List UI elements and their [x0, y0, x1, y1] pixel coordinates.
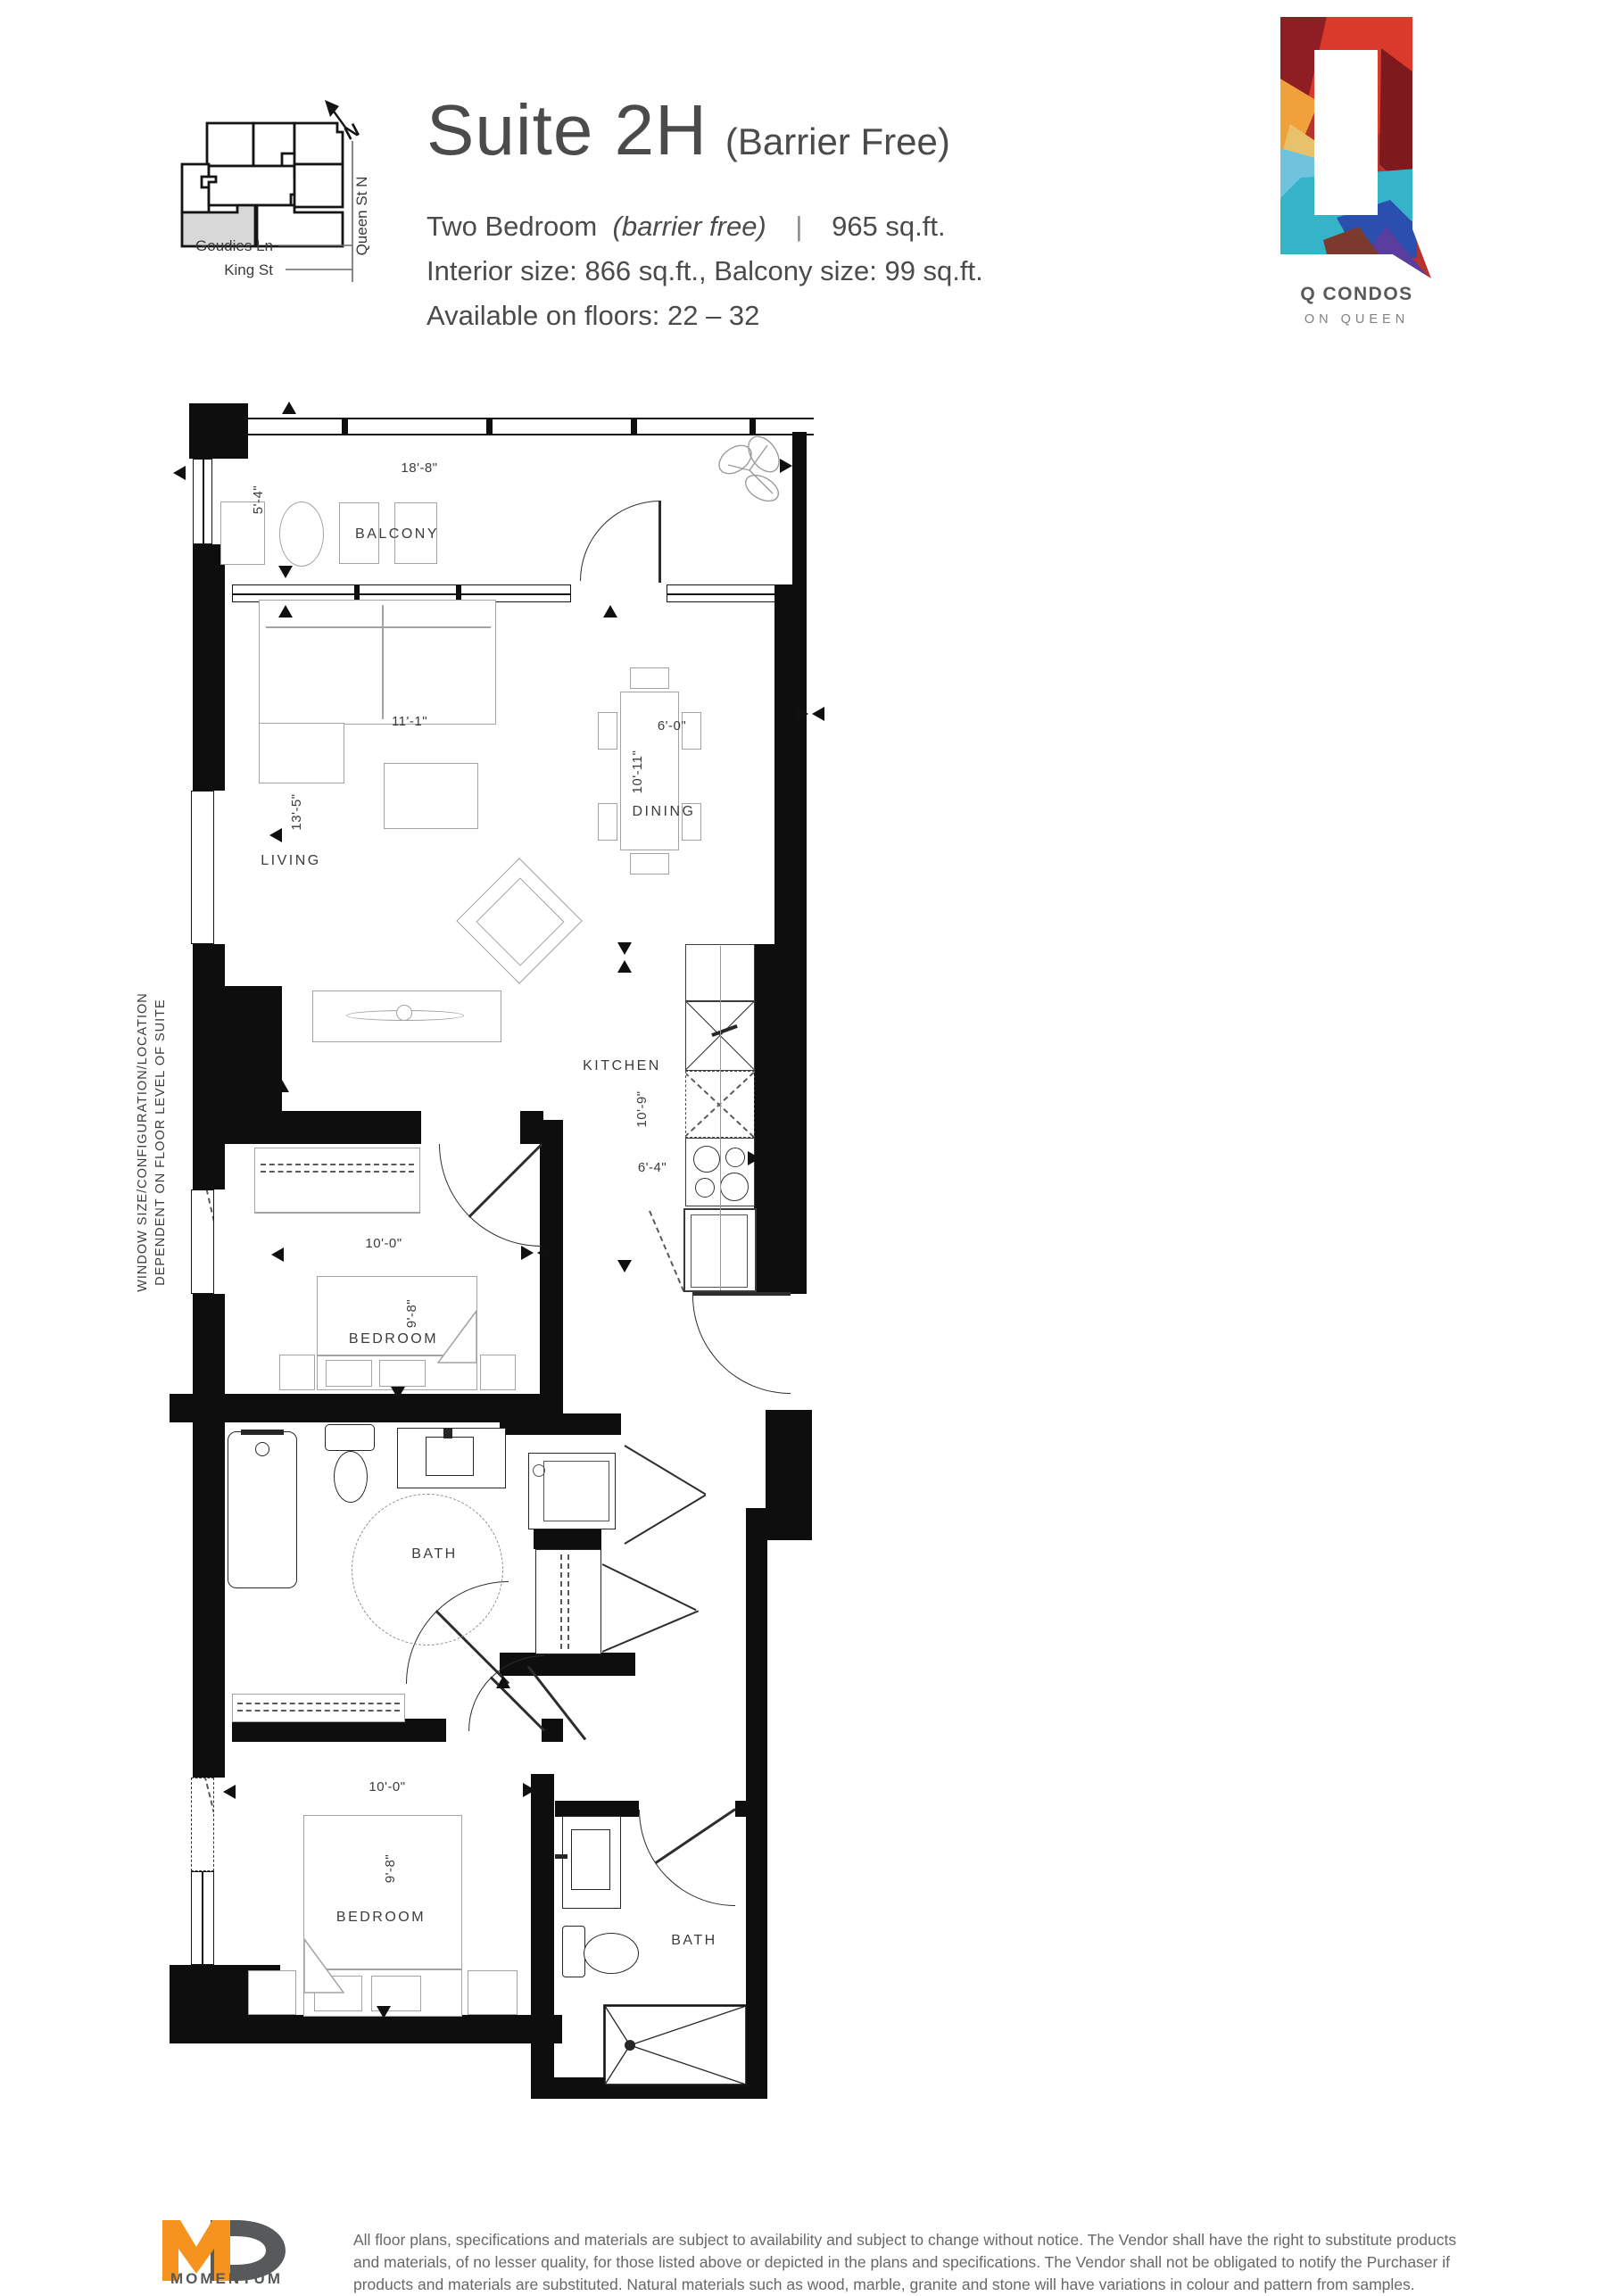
rail-post — [631, 419, 637, 434]
direction-marker — [617, 942, 632, 955]
bifold-leaf — [602, 1610, 699, 1653]
nightstand — [480, 1355, 516, 1390]
toilet-tank — [325, 1424, 375, 1451]
tv-base — [396, 1005, 412, 1021]
street-queen: Queen St N — [353, 177, 370, 256]
linen-shelf — [560, 1554, 562, 1649]
suite-floors: Available on floors: 22 – 32 — [427, 300, 759, 332]
direction-marker — [391, 1387, 405, 1399]
dim-living-width: 11'-1" — [374, 714, 445, 729]
window — [193, 459, 212, 544]
wall-segment — [754, 944, 776, 1294]
direction-marker — [269, 828, 282, 842]
wall-segment — [534, 1528, 601, 1549]
balcony-door-leaf — [658, 501, 661, 583]
bifold-leaf — [624, 1495, 706, 1545]
page-title: Suite 2H (Barrier Free) — [427, 89, 950, 171]
entry-door-arc — [692, 1296, 791, 1394]
dim-balcony-depth: 5'-4" — [251, 472, 267, 527]
wall-segment — [775, 584, 807, 602]
nightstand — [279, 1355, 315, 1390]
wall-segment — [531, 2015, 554, 2099]
closet-front — [254, 1212, 420, 1214]
keyplate-map: Goudies Ln King St Queen St N N — [171, 82, 381, 296]
nightstand — [248, 1970, 296, 2015]
washer-dryer — [528, 1453, 616, 1529]
dim-bedroom1-width: 10'-0" — [348, 1236, 419, 1251]
separator: | — [795, 211, 802, 242]
label-bedroom2: BEDROOM — [314, 1910, 448, 1926]
suite-name: Suite 2H — [427, 89, 708, 171]
label-dining: DINING — [610, 804, 717, 820]
wall-segment — [193, 1294, 225, 1778]
label-balcony: BALCONY — [344, 526, 451, 543]
closet — [232, 1694, 405, 1722]
bath2-door-arc — [639, 1810, 735, 1906]
balcony-door-arc — [580, 501, 660, 581]
direction-marker — [812, 707, 824, 721]
direction-marker — [537, 1246, 550, 1260]
toilet-tank — [562, 1926, 585, 1977]
wall-segment — [189, 403, 248, 459]
direction-marker — [278, 566, 293, 578]
dining-chair — [630, 853, 669, 874]
brand-name: Q CONDOS — [1274, 284, 1439, 305]
window — [191, 1189, 214, 1294]
plant-icon — [708, 433, 791, 510]
dining-chair — [598, 712, 617, 750]
rail-post — [486, 419, 493, 434]
direction-marker — [223, 1785, 236, 1799]
direction-marker — [496, 1676, 510, 1688]
rail-post — [342, 419, 348, 434]
suite-sizes: Interior size: 866 sq.ft., Balcony size:… — [427, 255, 983, 287]
direction-marker — [521, 1246, 534, 1260]
shower — [603, 2004, 748, 2086]
dim-living-depth: 13'-5" — [289, 784, 305, 840]
wall-segment — [766, 1410, 812, 1540]
sink-basin — [571, 1829, 610, 1890]
direction-marker — [796, 707, 808, 721]
direction-marker — [278, 605, 293, 618]
direction-marker — [748, 1151, 760, 1165]
closet-rod — [237, 1703, 400, 1704]
wall-segment — [531, 1774, 554, 2017]
window — [191, 1871, 214, 1965]
window — [667, 584, 775, 602]
toilet-bowl — [584, 1933, 639, 1974]
direction-marker — [780, 459, 792, 473]
wall-segment — [555, 1801, 639, 1817]
bed-fold — [303, 1938, 344, 1993]
closet-rod — [237, 1710, 400, 1712]
window — [191, 791, 214, 944]
wall-segment — [746, 1508, 767, 2097]
balcony-table — [279, 501, 324, 567]
dim-bedroom2-width: 10'-0" — [352, 1779, 423, 1795]
direction-marker — [523, 1783, 535, 1797]
direction-marker — [282, 402, 296, 414]
wall-segment — [540, 1120, 563, 1421]
wall-segment — [170, 2015, 562, 2043]
suite-summary: Two Bedroom (barrier free) | 965 sq.ft. — [427, 211, 946, 243]
coffee-table — [384, 763, 478, 829]
dim-balcony-width: 18'-8" — [384, 460, 455, 476]
direction-marker — [617, 1260, 632, 1272]
wall-segment — [225, 1111, 421, 1144]
floor-plan: WINDOW SIZE/CONFIGURATION/LOCATION DEPEN… — [125, 384, 823, 2106]
direction-marker — [377, 2006, 391, 2018]
brand-tagline: ON QUEEN — [1274, 312, 1439, 327]
suite-type: Two Bedroom — [427, 211, 597, 242]
wall-segment — [735, 1801, 748, 1817]
label-bath1: BATH — [390, 1546, 479, 1562]
sofa-line — [382, 605, 384, 719]
label-bedroom1: BEDROOM — [327, 1331, 460, 1347]
nightstand — [468, 1970, 518, 2015]
dim-kitchen-width: 6'-4" — [617, 1160, 688, 1175]
suite-area: 965 sq.ft. — [832, 211, 946, 242]
wall-segment — [170, 1394, 544, 1422]
closet — [254, 1148, 420, 1214]
toilet-bowl — [334, 1451, 368, 1503]
bifold-leaf — [624, 1445, 706, 1495]
pillow — [379, 1360, 426, 1387]
label-living: LIVING — [237, 853, 344, 869]
disclaimer: All floor plans, specifications and mate… — [353, 2229, 1482, 2296]
north-label: N — [341, 120, 362, 144]
direction-marker — [617, 960, 632, 973]
dining-table — [620, 692, 679, 850]
suite-type-note: (barrier free) — [613, 211, 766, 242]
wall-segment — [193, 544, 225, 791]
keyplate-building — [182, 123, 343, 246]
sofa-line — [266, 626, 491, 628]
rail-post — [750, 419, 756, 434]
tub-faucet — [255, 1442, 269, 1456]
window-dashed — [191, 1778, 214, 1871]
dim-dining-width: 6'-0" — [636, 718, 708, 734]
dim-dining-depth: 10'-11" — [630, 744, 646, 800]
direction-marker — [271, 1247, 284, 1262]
window-note: WINDOW SIZE/CONFIGURATION/LOCATION DEPEN… — [134, 971, 170, 1314]
momentum-wordmark: MOMENTUM — [137, 2270, 316, 2288]
street-goudies: Goudies Ln — [195, 237, 273, 254]
wall-segment — [193, 986, 282, 1111]
tub-faucet-bar — [241, 1430, 284, 1435]
street-king: King St — [224, 261, 273, 278]
direction-marker — [173, 466, 186, 480]
wall-segment — [542, 1719, 563, 1742]
suite-qualifier: (Barrier Free) — [725, 120, 950, 163]
accent-chair — [453, 855, 587, 989]
wall-segment — [792, 432, 807, 591]
bifold-leaf — [602, 1563, 697, 1611]
sink-faucet — [443, 1428, 452, 1438]
pillow — [326, 1360, 372, 1387]
wall-segment — [500, 1413, 621, 1435]
label-bath2: BATH — [657, 1933, 732, 1949]
sink-basin — [426, 1437, 474, 1476]
counter-centerline — [720, 946, 721, 1290]
linen-shelf — [567, 1554, 569, 1649]
q-logo-counter — [1314, 50, 1378, 215]
sink-faucet — [555, 1854, 567, 1859]
closet-rod — [261, 1164, 414, 1165]
direction-marker — [603, 605, 617, 618]
turning-circle — [352, 1494, 503, 1645]
q-condos-logo — [1274, 12, 1439, 289]
dim-bedroom2-depth: 9'-8" — [383, 1841, 399, 1896]
dining-chair — [630, 667, 669, 689]
label-kitchen: KITCHEN — [567, 1058, 677, 1074]
pantry-door-dashed — [649, 1211, 684, 1292]
closet-rod — [261, 1171, 414, 1173]
direction-marker — [275, 1080, 289, 1092]
sofa — [259, 600, 496, 725]
dim-kitchen-depth: 10'-9" — [634, 1082, 650, 1137]
sofa-chaise — [259, 723, 344, 783]
